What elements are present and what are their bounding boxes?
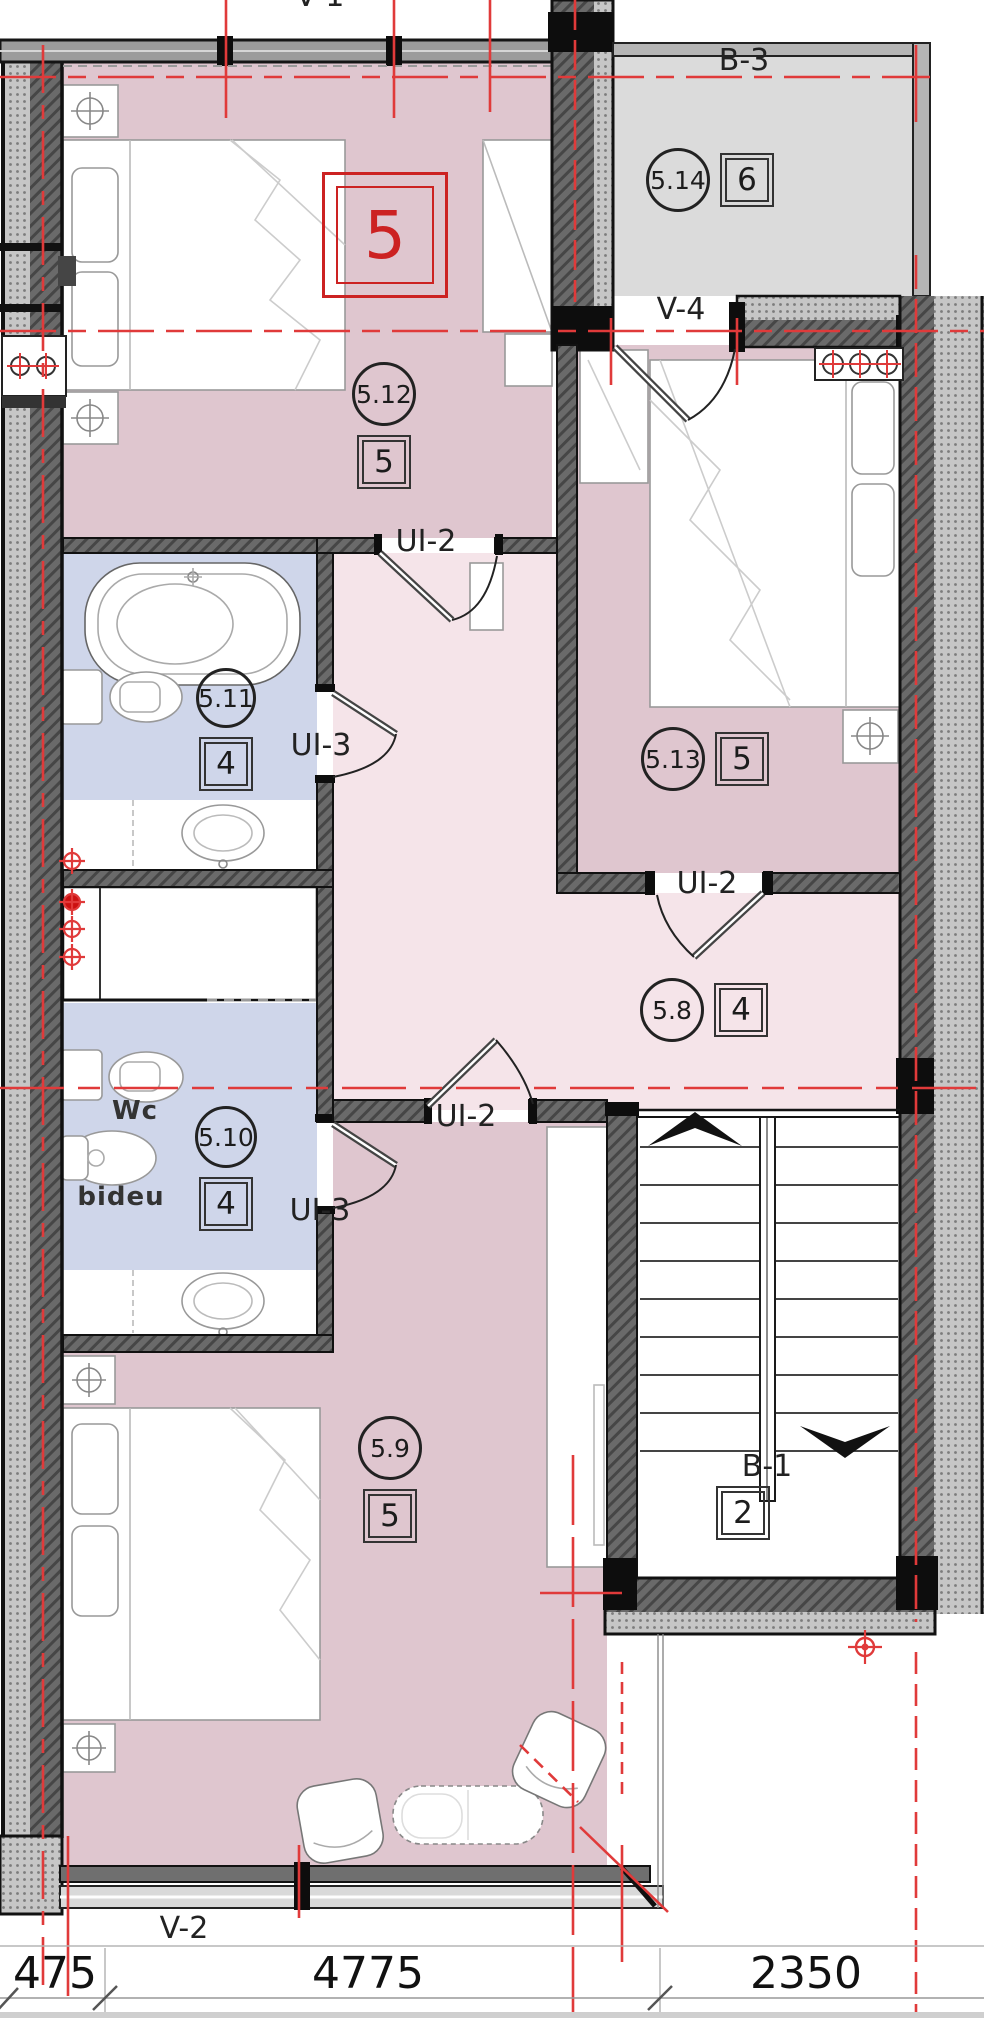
floor-plan: V-1 B-3 V-4 V-2 B-1 UI-2 UI-3 UI-2 UI-2 … — [0, 0, 984, 2018]
room-index: 5 — [362, 440, 406, 484]
unit-number-badge: 5 — [322, 172, 448, 298]
bed-top — [63, 140, 345, 390]
room-tag-b1: 2 — [716, 1486, 770, 1540]
room-index: 5 — [720, 737, 764, 781]
window-label-v1: V-1 — [260, 0, 380, 12]
room-number: 5.9 — [358, 1416, 422, 1480]
dimension-middle: 4775 — [288, 1952, 448, 1996]
room-number: 5.14 — [646, 148, 710, 212]
room-number: 5.13 — [641, 727, 705, 791]
room-number: 5.11 — [196, 668, 256, 728]
dimension-right: 2350 — [726, 1952, 886, 1996]
bed-living — [63, 1408, 320, 1720]
door-label-ui3-bath-bottom: UI-3 — [260, 1196, 380, 1226]
storage-floor — [63, 887, 317, 1000]
armchair — [294, 1776, 386, 1867]
fixture-label-bidet: bideu — [66, 1184, 176, 1210]
toilet — [60, 1050, 183, 1102]
room-index: 4 — [204, 1182, 248, 1226]
room-number: 5.8 — [640, 978, 704, 1042]
room-index: 5 — [368, 1494, 412, 1538]
door-label-ui2-bedroom: UI-2 — [366, 527, 486, 557]
unit-number: 5 — [336, 186, 434, 284]
room-tag-5-10: 5.10 4 — [195, 1106, 257, 1231]
bed-right — [650, 360, 900, 707]
balcony-label-b1: B-1 — [722, 1452, 812, 1482]
bidet — [60, 1131, 156, 1185]
living-closet — [547, 1127, 607, 1567]
balcony-label-b3: B-3 — [684, 46, 804, 76]
dimension-left: 475 — [0, 1952, 110, 1996]
fixture-label-wc: Wc — [100, 1098, 170, 1124]
door-label-ui2-hall: UI-2 — [406, 1102, 526, 1132]
room-index: 4 — [204, 742, 248, 786]
plan-drawing — [0, 0, 984, 2018]
door-label-ui3-bath-top: UI-3 — [261, 731, 381, 761]
room-tag-5-13: 5.13 5 — [641, 727, 769, 791]
bathtub — [85, 563, 300, 685]
door-label-ui2-room513: UI-2 — [647, 869, 767, 899]
toilet — [60, 670, 182, 724]
room-number: 5.12 — [352, 362, 416, 426]
room-index: 4 — [719, 988, 763, 1032]
room-tag-5-11: 5.11 4 — [196, 668, 256, 791]
room-tag-5-9: 5.9 5 — [358, 1416, 422, 1543]
room-tag-5-8: 5.8 4 — [640, 978, 768, 1042]
sofa — [393, 1786, 543, 1844]
room-number: 5.10 — [195, 1106, 257, 1168]
room-tag-5-12: 5.12 5 — [352, 362, 416, 489]
room-index: 2 — [721, 1491, 765, 1535]
hall-cabinet — [470, 563, 503, 630]
door-label-v4: V-4 — [621, 295, 741, 325]
room-index: 6 — [725, 158, 769, 202]
window-label-v2: V-2 — [124, 1914, 244, 1944]
room-tag-5-14: 5.14 6 — [646, 148, 774, 212]
